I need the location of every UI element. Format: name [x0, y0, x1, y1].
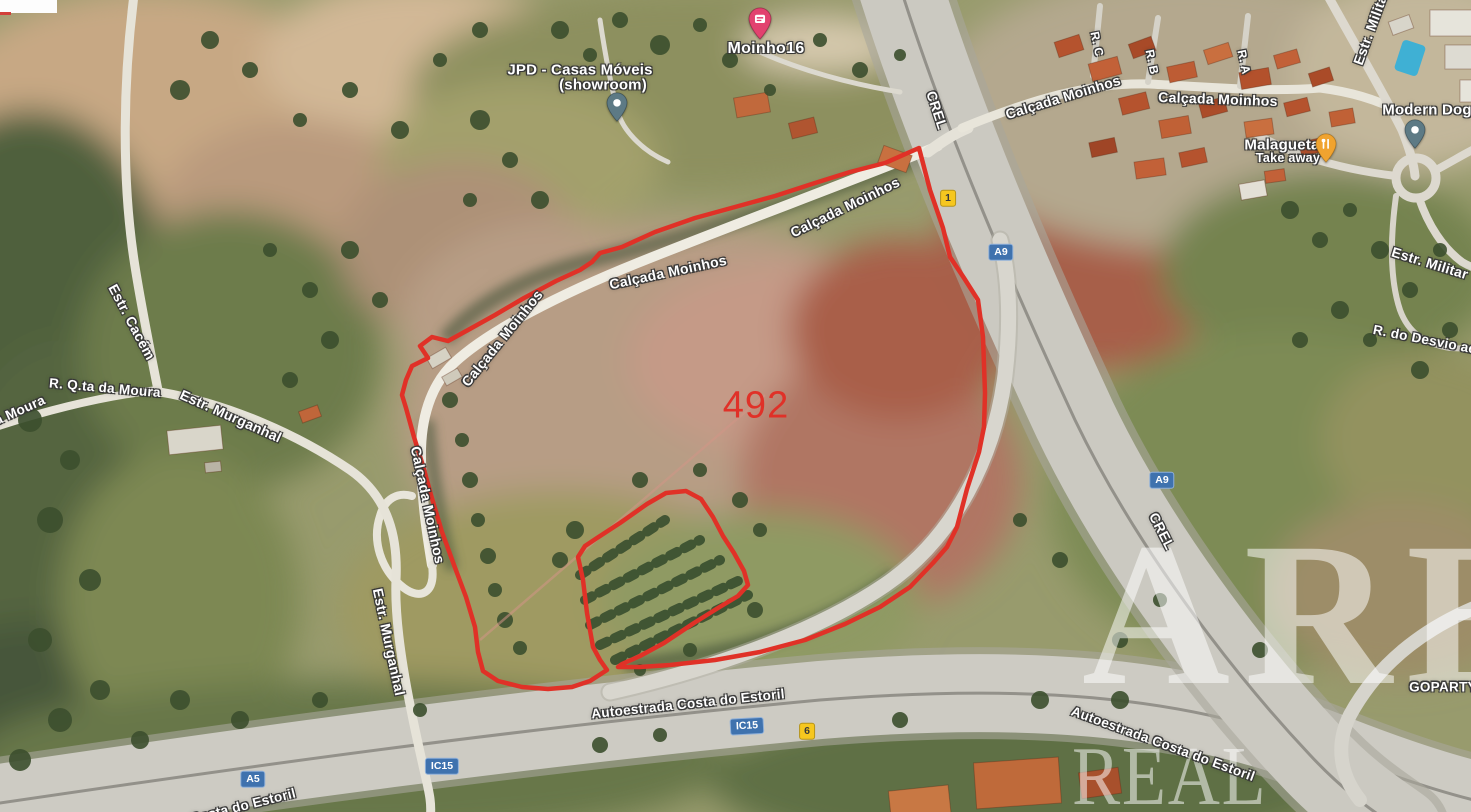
poi-label-modern-dog[interactable]: Modern Dog	[1382, 103, 1471, 118]
parcel-number: 492	[723, 385, 789, 428]
jpd-pin-icon[interactable]	[606, 92, 628, 122]
satellite-map-canvas[interactable]: ARE REAL ESTATE Calçada Moinhos Calçada …	[0, 0, 1471, 812]
route-badge-n6: 6	[799, 723, 815, 740]
poi-label-malagueta-sub[interactable]: Take away	[1256, 152, 1320, 165]
route-badge-ic15-east: IC15	[729, 717, 764, 735]
route-badge-a9-right: A9	[1149, 472, 1174, 489]
poi-label-jpd-line1[interactable]: JPD - Casas Móveis	[507, 63, 652, 78]
route-badge-a5: A5	[240, 771, 265, 788]
road-label-calcada-moinhos-east-2: Calçada Moinhos	[1158, 90, 1278, 108]
moinho16-pin-icon[interactable]	[748, 7, 772, 40]
modern-dog-pin-icon[interactable]	[1404, 119, 1426, 149]
top-left-red-mark	[0, 12, 11, 15]
malagueta-pin-icon[interactable]	[1315, 133, 1337, 163]
route-badge-a9-top: A9	[988, 244, 1013, 261]
route-badge-n1: 1	[940, 190, 956, 207]
poi-label-moinho16[interactable]: Moinho16	[727, 41, 804, 57]
route-badge-ic15-west: IC15	[425, 758, 459, 775]
poi-label-jpd-line2[interactable]: (showroom)	[559, 78, 647, 93]
poi-label-goparty[interactable]: GOPARTY	[1409, 680, 1471, 694]
